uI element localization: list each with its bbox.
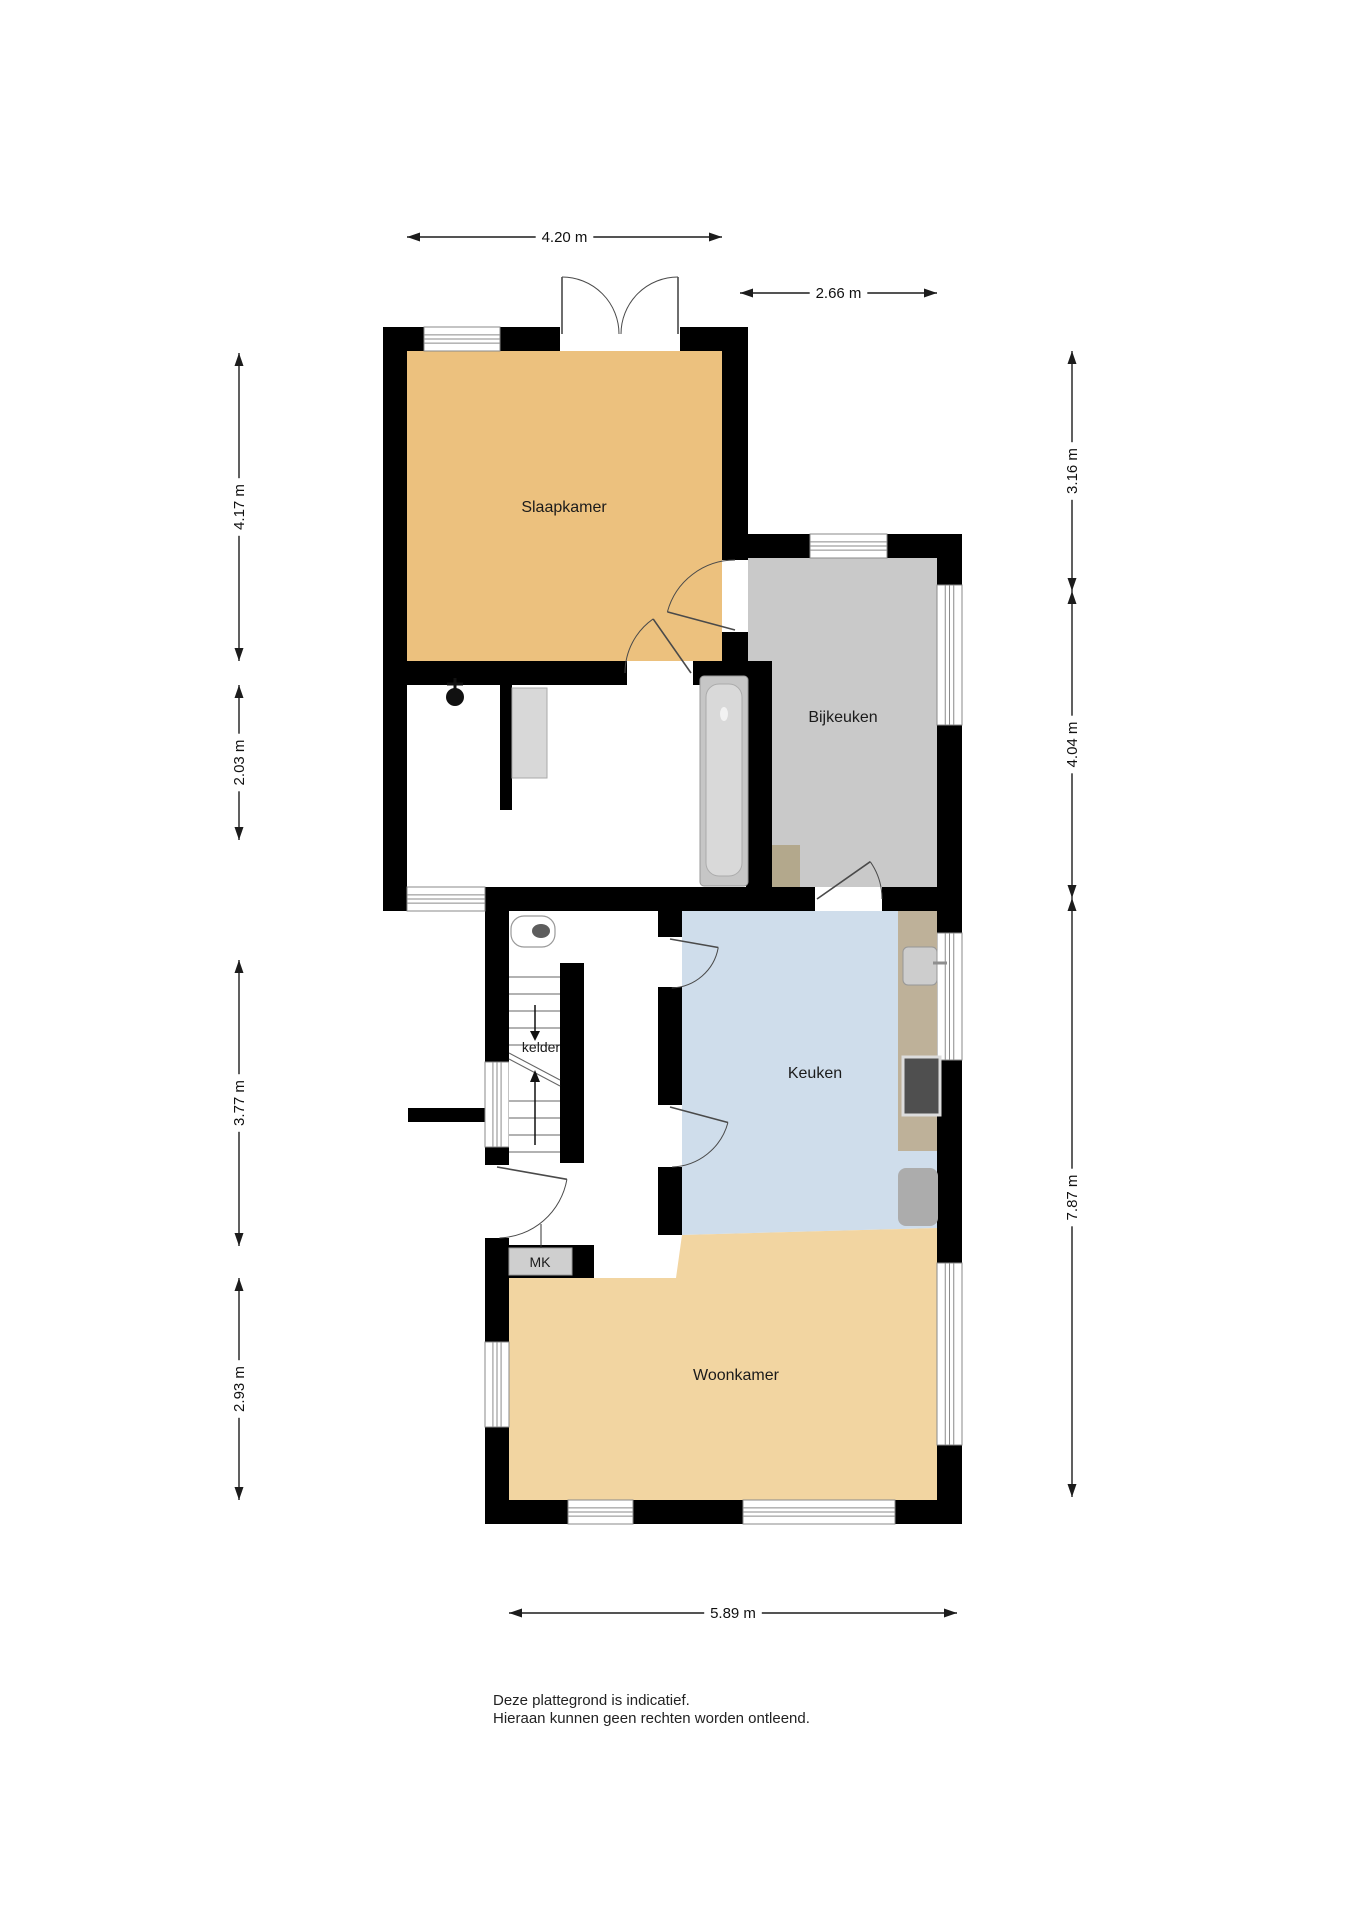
- arrow-up-icon: [235, 960, 244, 973]
- kelder-label: kelder: [522, 1039, 560, 1055]
- dimension: 7.87 m: [1062, 898, 1082, 1497]
- french-door-right-swing: [621, 277, 678, 334]
- dimension-label: 3.77 m: [231, 1080, 248, 1126]
- door-opening: [627, 661, 693, 685]
- room-bathroom: [407, 685, 748, 887]
- wall: [500, 685, 512, 810]
- dimension: 4.17 m: [229, 353, 249, 661]
- arrow-up-icon: [1068, 351, 1077, 364]
- arrow-down-icon: [1068, 885, 1077, 898]
- shower-head-icon: [446, 688, 464, 706]
- dimension-label: 2.66 m: [816, 285, 862, 302]
- arrow-up-icon: [1068, 591, 1077, 604]
- bathtub-drain: [720, 707, 728, 721]
- arrow-left-icon: [509, 1609, 522, 1618]
- dimension: 5.89 m: [509, 1603, 957, 1623]
- dimension: 4.04 m: [1062, 591, 1082, 898]
- arrow-down-icon: [235, 827, 244, 840]
- dimension-label: 4.20 m: [542, 229, 588, 246]
- door-opening: [485, 1165, 509, 1238]
- dimension: 4.20 m: [407, 227, 722, 247]
- wall: [560, 963, 584, 1163]
- sink-icon: [903, 947, 937, 985]
- arrow-right-icon: [709, 233, 722, 242]
- arrow-up-icon: [235, 685, 244, 698]
- wall: [407, 661, 748, 685]
- disclaimer-line1: Deze plattegrond is indicatief.: [493, 1692, 810, 1710]
- dimension: 2.03 m: [229, 685, 249, 840]
- arrow-down-icon: [1068, 1484, 1077, 1497]
- door-opening: [658, 937, 682, 987]
- disclaimer: Deze plattegrond is indicatief. Hieraan …: [493, 1692, 810, 1728]
- arrow-left-icon: [407, 233, 420, 242]
- room-label-woonkamer: Woonkamer: [693, 1367, 780, 1384]
- toilet-seat: [532, 924, 550, 938]
- dimension: 2.66 m: [740, 283, 937, 303]
- dimension-label: 4.17 m: [231, 484, 248, 530]
- dimension-label: 4.04 m: [1064, 722, 1081, 768]
- mk-label: MK: [530, 1254, 552, 1270]
- door-opening: [815, 887, 882, 911]
- wall: [383, 327, 407, 911]
- room-label-slaapkamer: Slaapkamer: [521, 499, 607, 516]
- step-icon: [772, 845, 800, 887]
- room-label-bijkeuken: Bijkeuken: [808, 709, 877, 726]
- wall: [746, 661, 772, 911]
- arrow-down-icon: [1068, 578, 1077, 591]
- dimension: 2.93 m: [229, 1278, 249, 1500]
- arrow-down-icon: [235, 1487, 244, 1500]
- disclaimer-line2: Hieraan kunnen geen rechten worden ontle…: [493, 1710, 810, 1728]
- floorplan-canvas: SlaapkamerBijkeukenKeukenWoonkamerkelder…: [0, 0, 1358, 1920]
- arrow-right-icon: [944, 1609, 957, 1618]
- door-opening: [722, 560, 748, 632]
- french-door-left-swing: [562, 277, 619, 334]
- dimension-label: 2.93 m: [231, 1366, 248, 1412]
- arrow-down-icon: [235, 648, 244, 661]
- stove-icon: [903, 1057, 940, 1115]
- door-opening: [658, 1105, 682, 1167]
- wall: [408, 1108, 485, 1122]
- dimension-label: 5.89 m: [710, 1605, 756, 1622]
- floorplan-drawing: SlaapkamerBijkeukenKeukenWoonkamerkelder…: [0, 0, 1358, 1920]
- arrow-up-icon: [1068, 898, 1077, 911]
- dimension-label: 3.16 m: [1064, 448, 1081, 494]
- dimension: 3.16 m: [1062, 351, 1082, 591]
- arrow-left-icon: [740, 289, 753, 298]
- room-label-keuken: Keuken: [788, 1065, 842, 1082]
- dimension-label: 7.87 m: [1064, 1175, 1081, 1221]
- cabinet-icon: [512, 688, 547, 778]
- dimension-label: 2.03 m: [231, 740, 248, 786]
- appliance-icon: [898, 1168, 938, 1226]
- door-opening: [560, 327, 680, 351]
- arrow-down-icon: [235, 1233, 244, 1246]
- dimension: 3.77 m: [229, 960, 249, 1246]
- arrow-up-icon: [235, 353, 244, 366]
- arrow-right-icon: [924, 289, 937, 298]
- arrow-up-icon: [235, 1278, 244, 1291]
